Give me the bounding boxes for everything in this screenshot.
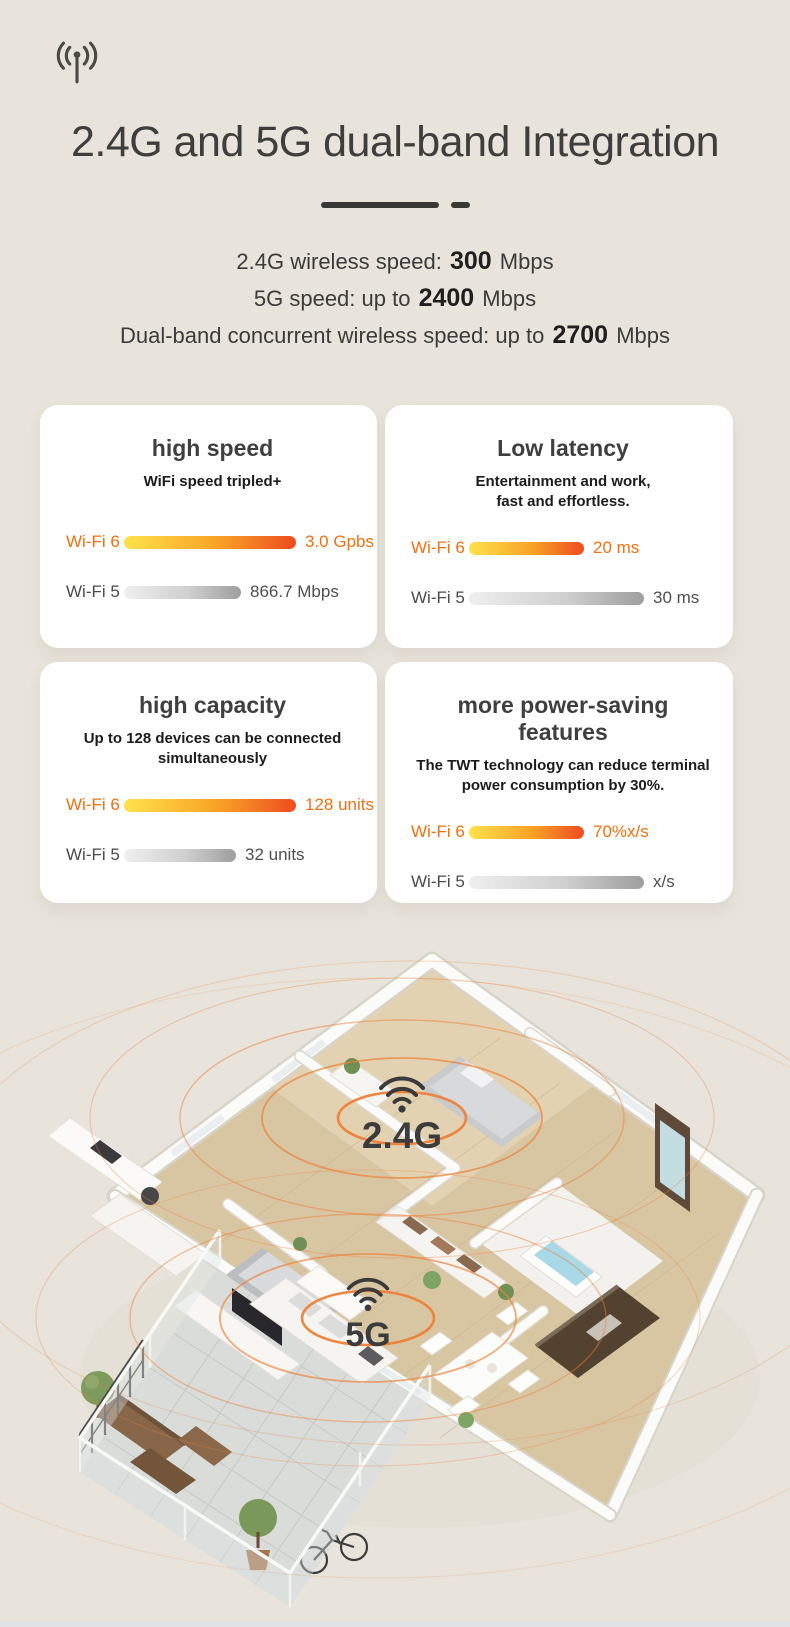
row-value: 70%x/s bbox=[593, 822, 649, 842]
speed-specs: 2.4G wireless speed: 300 Mbps 5G speed: … bbox=[0, 243, 790, 354]
row-value: x/s bbox=[653, 872, 675, 892]
wifi6-bar bbox=[469, 542, 584, 555]
spec-line-5g: 5G speed: up to 2400 Mbps bbox=[0, 280, 790, 317]
row-label: Wi-Fi 6 bbox=[411, 538, 469, 558]
feature-card-high-speed: high speed WiFi speed tripled+ Wi-Fi 6 3… bbox=[40, 405, 377, 648]
feature-card-low-latency: Low latency Entertainment and work, fast… bbox=[385, 405, 733, 648]
comparison-row: Wi-Fi 6 70%x/s bbox=[411, 822, 715, 842]
row-value: 128 units bbox=[305, 795, 374, 815]
comparison-row: Wi-Fi 6 128 units bbox=[66, 795, 359, 815]
spec-value: 2400 bbox=[417, 284, 477, 312]
row-value: 32 units bbox=[245, 845, 305, 865]
spec-value: 2700 bbox=[550, 321, 610, 349]
floorplan-illustration: 2.4G 5G bbox=[0, 948, 790, 1621]
desk bbox=[48, 1118, 162, 1200]
divider-bar bbox=[321, 202, 439, 208]
card-title: high speed bbox=[66, 435, 359, 462]
spec-value: 300 bbox=[448, 247, 494, 275]
wifi6-bar bbox=[124, 536, 296, 549]
wifi5-bar bbox=[469, 592, 644, 605]
row-value: 20 ms bbox=[593, 538, 639, 558]
card-subtitle: WiFi speed tripled+ bbox=[66, 472, 359, 492]
comparison-row: Wi-Fi 5 866.7 Mbps bbox=[66, 582, 359, 602]
spec-line-2-4g: 2.4G wireless speed: 300 Mbps bbox=[0, 243, 790, 280]
potted-tree bbox=[239, 1499, 277, 1537]
comparison-row: Wi-Fi 6 3.0 Gpbs bbox=[66, 532, 359, 552]
card-subtitle: The TWT technology can reduce terminal p… bbox=[411, 756, 715, 796]
row-label: Wi-Fi 5 bbox=[411, 588, 469, 608]
card-subtitle: Entertainment and work, fast and effortl… bbox=[411, 472, 715, 512]
card-title: more power-saving features bbox=[411, 692, 715, 746]
comparison-row: Wi-Fi 5 x/s bbox=[411, 872, 715, 892]
row-label: Wi-Fi 5 bbox=[66, 582, 124, 602]
wifi5-bar bbox=[124, 849, 236, 862]
card-subtitle: Up to 128 devices can be connected simul… bbox=[66, 729, 359, 769]
comparison-row: Wi-Fi 5 32 units bbox=[66, 845, 359, 865]
comparison-row: Wi-Fi 6 20 ms bbox=[411, 538, 715, 558]
row-label: Wi-Fi 6 bbox=[411, 822, 469, 842]
wifi6-bar bbox=[124, 799, 296, 812]
card-title: Low latency bbox=[411, 435, 715, 462]
row-label: Wi-Fi 6 bbox=[66, 795, 124, 815]
card-title: high capacity bbox=[66, 692, 359, 719]
divider-dash bbox=[451, 202, 470, 208]
bottom-strip bbox=[0, 1621, 790, 1627]
feature-card-power-saving: more power-saving features The TWT techn… bbox=[385, 662, 733, 903]
row-value: 866.7 Mbps bbox=[250, 582, 339, 602]
row-label: Wi-Fi 5 bbox=[411, 872, 469, 892]
page-title: 2.4G and 5G dual-band Integration bbox=[0, 118, 790, 167]
promo-page: 2.4G and 5G dual-band Integration 2.4G w… bbox=[0, 0, 790, 1627]
wifi5-bar bbox=[124, 586, 241, 599]
row-value: 3.0 Gpbs bbox=[305, 532, 374, 552]
comparison-row: Wi-Fi 5 30 ms bbox=[411, 588, 715, 608]
band-label-2-4g: 2.4G bbox=[362, 1115, 442, 1156]
title-divider bbox=[0, 202, 790, 208]
band-label-5g: 5G bbox=[345, 1316, 390, 1354]
row-label: Wi-Fi 6 bbox=[66, 532, 124, 552]
antenna-signal-icon bbox=[52, 38, 102, 88]
wifi5-bar bbox=[469, 876, 644, 889]
feature-card-high-capacity: high capacity Up to 128 devices can be c… bbox=[40, 662, 377, 903]
row-label: Wi-Fi 5 bbox=[66, 845, 124, 865]
row-value: 30 ms bbox=[653, 588, 699, 608]
spec-line-dual-band: Dual-band concurrent wireless speed: up … bbox=[0, 317, 790, 354]
wifi6-bar bbox=[469, 826, 584, 839]
